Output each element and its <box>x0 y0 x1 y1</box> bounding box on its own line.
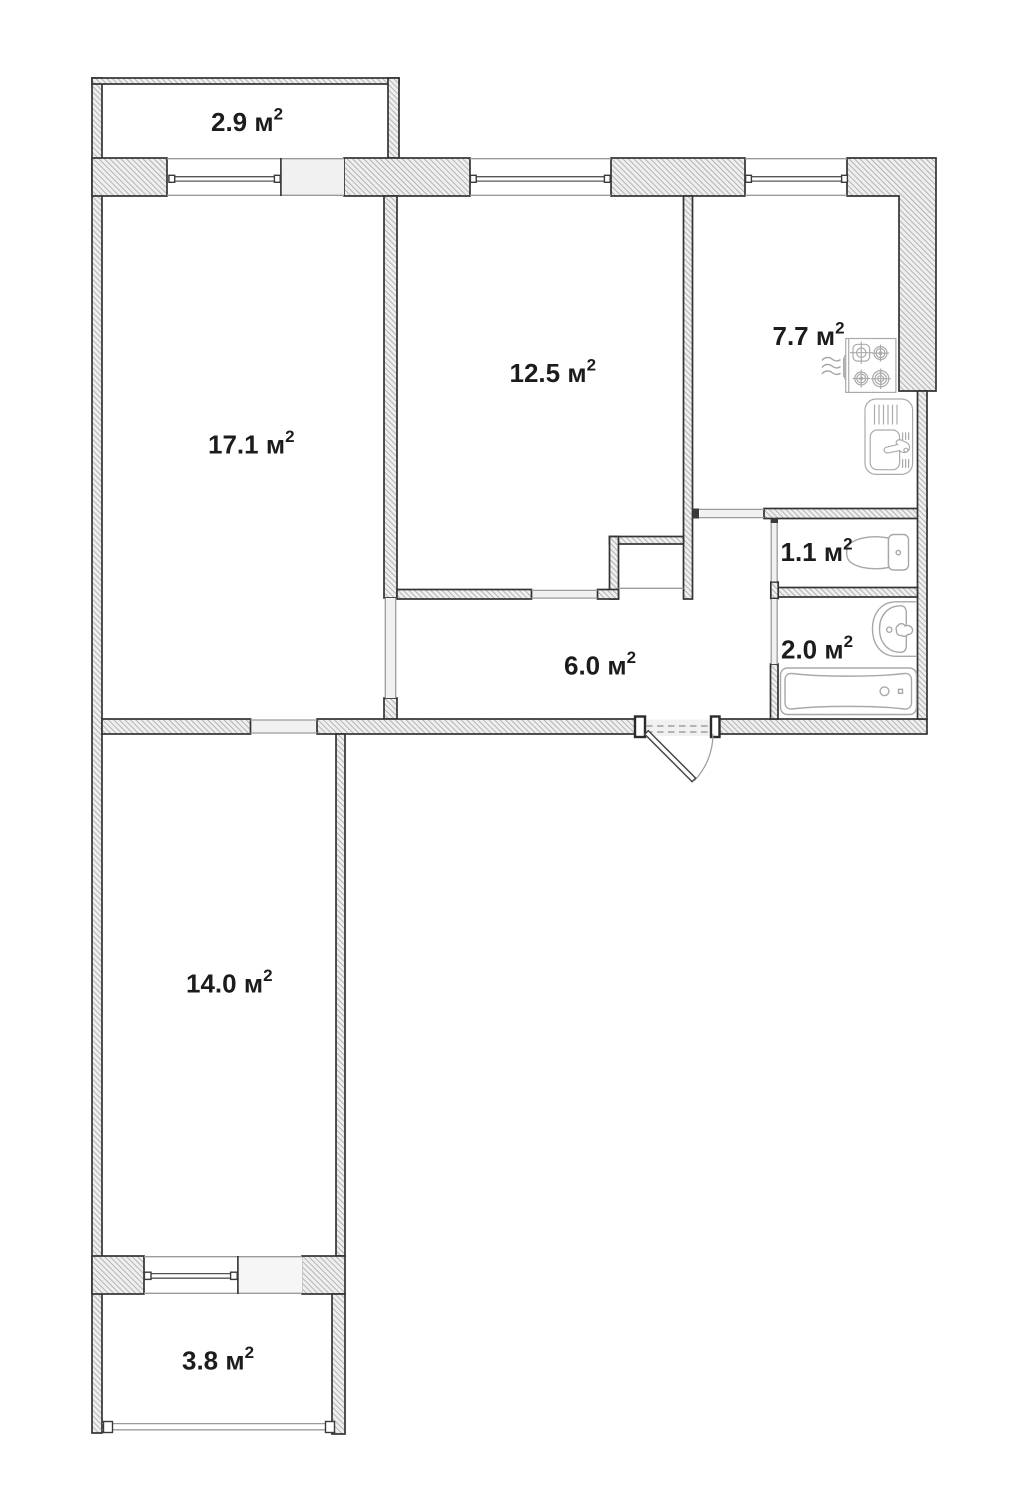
svg-text:7.7 м2: 7.7 м2 <box>773 319 845 352</box>
svg-text:17.1 м2: 17.1 м2 <box>208 427 295 460</box>
svg-text:12.5 м2: 12.5 м2 <box>510 356 597 389</box>
svg-text:1.1 м2: 1.1 м2 <box>781 535 853 568</box>
svg-text:3.8 м2: 3.8 м2 <box>182 1343 254 1376</box>
svg-text:14.0 м2: 14.0 м2 <box>186 966 273 999</box>
svg-text:2.0 м2: 2.0 м2 <box>781 632 853 665</box>
svg-text:6.0 м2: 6.0 м2 <box>564 648 636 681</box>
svg-text:2.9 м2: 2.9 м2 <box>211 105 283 138</box>
